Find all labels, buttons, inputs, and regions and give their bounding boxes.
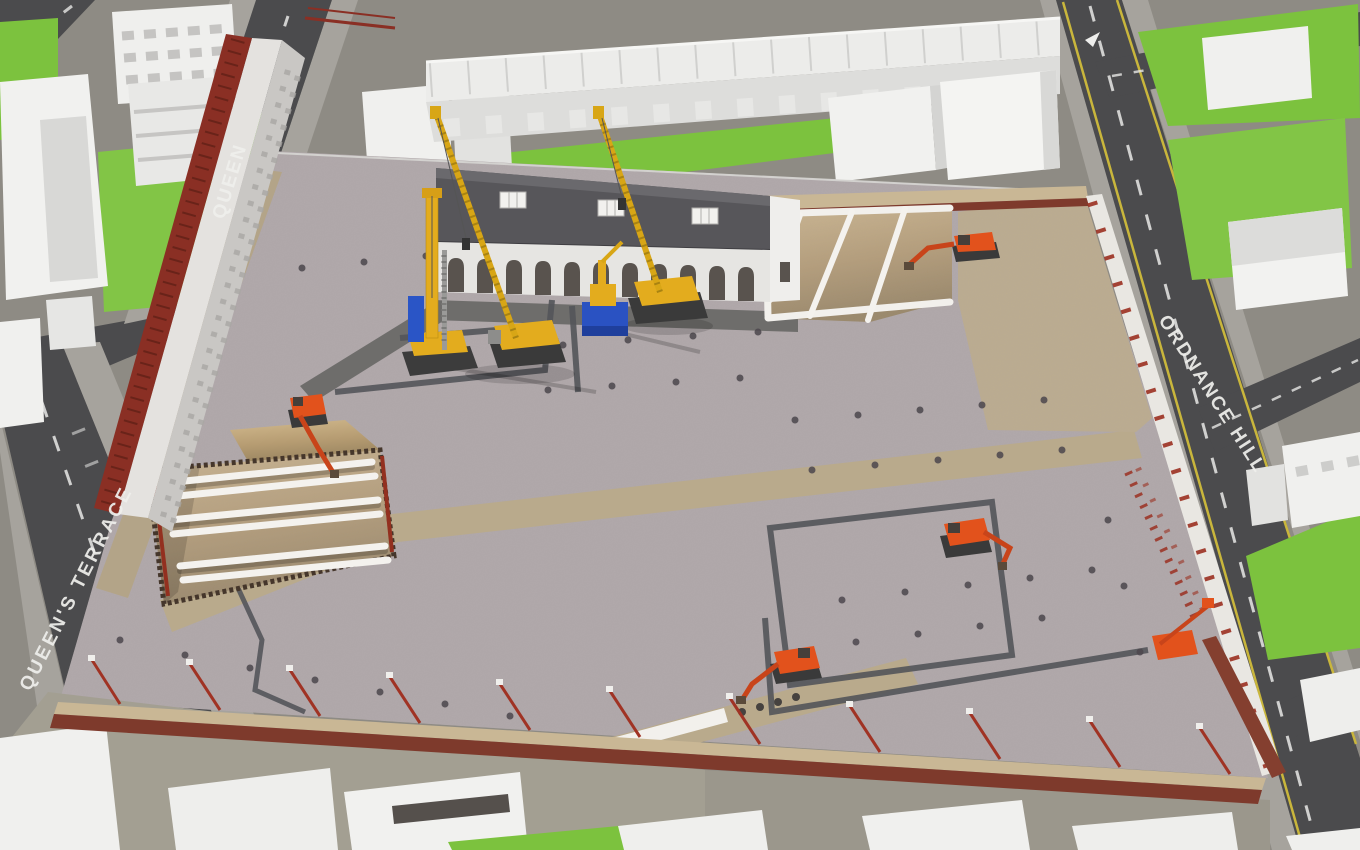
historic-annex xyxy=(770,196,800,302)
building-s-1 xyxy=(0,724,120,850)
pile-clamp-blue xyxy=(408,296,424,342)
roof-skylight xyxy=(500,192,526,208)
scene-canvas: QUEEN'S TERRACE QUEEN ORDNANCE HILL xyxy=(0,0,1360,850)
building-e-3 xyxy=(1282,432,1360,528)
site-3d-view: QUEEN'S TERRACE QUEEN ORDNANCE HILL xyxy=(0,0,1360,850)
building-e-1 xyxy=(1202,26,1312,110)
roof-skylight xyxy=(692,208,718,224)
building-ne-slab-1 xyxy=(828,86,936,182)
